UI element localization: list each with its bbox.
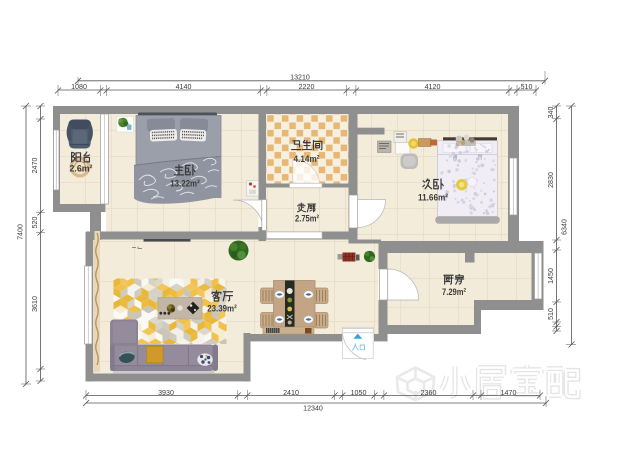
svg-text:1080: 1080	[71, 83, 87, 91]
svg-text:2360: 2360	[421, 389, 437, 397]
svg-text:7400: 7400	[17, 224, 25, 240]
svg-text:510: 510	[521, 83, 533, 91]
svg-text:2220: 2220	[299, 83, 315, 91]
svg-text:6340: 6340	[561, 219, 569, 235]
svg-text:2470: 2470	[31, 158, 39, 174]
svg-text:510: 510	[547, 308, 555, 320]
svg-text:520: 520	[31, 217, 39, 229]
svg-text:23.39m²: 23.39m²	[207, 304, 237, 314]
svg-text:3930: 3930	[158, 389, 174, 397]
svg-text:2410: 2410	[283, 389, 299, 397]
svg-text:2.75m²: 2.75m²	[295, 213, 319, 223]
svg-text:3610: 3610	[31, 296, 39, 312]
svg-text:4.14m²: 4.14m²	[294, 154, 320, 164]
svg-text:340: 340	[547, 107, 555, 119]
svg-text:11.66m²: 11.66m²	[418, 193, 448, 203]
svg-text:1450: 1450	[547, 268, 555, 284]
svg-text:13210: 13210	[290, 73, 310, 81]
svg-text:2.6m²: 2.6m²	[70, 164, 93, 174]
svg-text:1470: 1470	[501, 389, 517, 397]
svg-text:13.22m²: 13.22m²	[170, 179, 200, 189]
svg-text:4120: 4120	[425, 83, 441, 91]
svg-text:7.29m²: 7.29m²	[442, 287, 466, 297]
svg-text:4140: 4140	[176, 83, 192, 91]
svg-text:12340: 12340	[303, 405, 323, 413]
svg-text:2830: 2830	[547, 172, 555, 188]
svg-text:1050: 1050	[351, 389, 367, 397]
